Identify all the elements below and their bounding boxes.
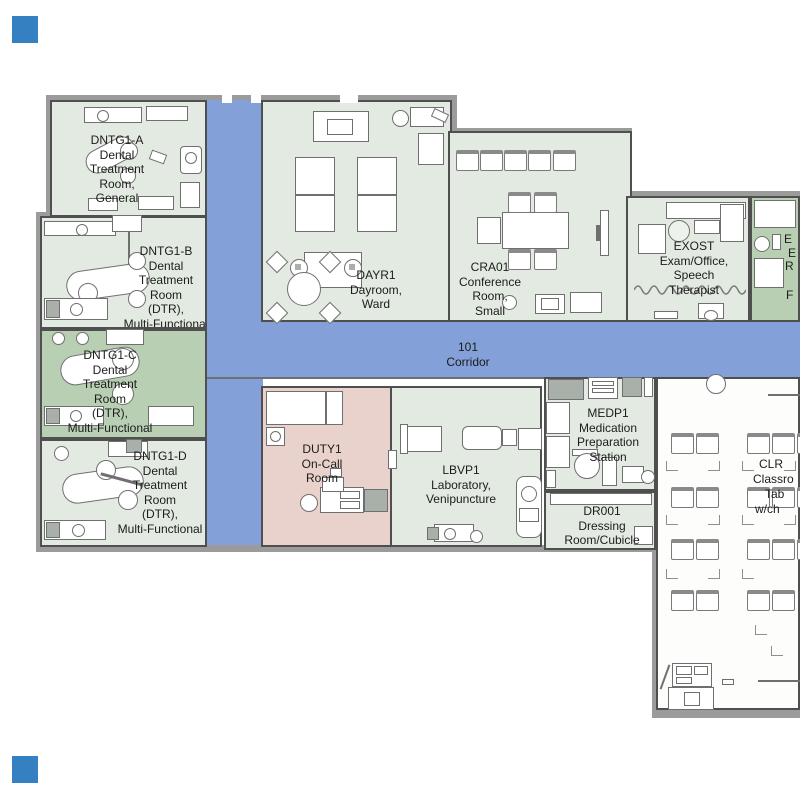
door-gap-1 (222, 94, 232, 103)
chair-icon (528, 150, 551, 171)
table-corner-mark (755, 625, 767, 635)
basin-icon (70, 303, 83, 316)
room-label-exam-frag-4: F (786, 288, 793, 302)
wall-line (768, 394, 800, 396)
headrest-icon (521, 486, 537, 502)
chair-icon (534, 192, 557, 213)
chair-icon (392, 110, 409, 127)
equipment-icon (46, 522, 60, 538)
basin-icon (185, 152, 197, 164)
blood-draw-chair-icon (462, 426, 502, 450)
sink-icon (97, 110, 109, 122)
basin-icon (444, 528, 456, 540)
table-corner-mark (666, 461, 678, 471)
desk-item-icon (340, 491, 360, 499)
equipment-icon (46, 300, 60, 318)
room-label-dayr1: DAYR1Dayroom,Ward (350, 268, 402, 312)
corridor-horizontal (205, 322, 800, 377)
corner-marker-top-left (12, 16, 38, 43)
room-label-duty1: DUTY1On-CallRoom (302, 442, 343, 486)
classroom-chair-icon (671, 487, 694, 508)
desk-item-icon (676, 666, 692, 675)
credenza-icon (570, 292, 602, 313)
speaker-cone-icon (295, 264, 301, 270)
bench-icon (654, 311, 678, 319)
table-corner-mark (708, 569, 720, 579)
shelf-line (592, 388, 614, 393)
chair-icon (456, 150, 479, 171)
classroom-chair-icon (747, 433, 770, 454)
chair-icon (508, 192, 531, 213)
classroom-chair-icon (772, 539, 795, 560)
stool-icon (470, 530, 483, 543)
sink-icon (76, 332, 89, 345)
tv-mount-icon (596, 225, 600, 241)
room-label-exam-frag-1: E (784, 232, 792, 246)
toilet-icon (704, 310, 718, 321)
desk-item-icon (694, 666, 708, 675)
classroom-chair-icon (696, 433, 719, 454)
room-label-medp1: MEDP1MedicationPreparationStation (577, 406, 639, 464)
table-corner-mark (742, 515, 754, 525)
room-label-exam-frag-3: R (785, 259, 794, 273)
room-label-dntg1-b: DNTG1-BDentalTreatmentRoom(DTR),Multi-Fu… (124, 244, 207, 329)
sink-icon (54, 446, 69, 461)
classroom-chair-icon (747, 539, 770, 560)
room-label-dr001: DR001DressingRoom/Cubicle (564, 504, 639, 548)
classroom-chair-icon (696, 539, 719, 560)
armrest-icon (502, 429, 517, 446)
wardrobe-shelf-line (295, 194, 335, 196)
table-corner-mark (742, 461, 754, 471)
chair-icon (504, 150, 527, 171)
classroom-chair-icon (696, 487, 719, 508)
table-corner-mark (708, 461, 720, 471)
speaker-cone-icon (270, 431, 281, 442)
room-label-exost: EXOSTExam/Office,SpeechTherapist (660, 239, 728, 297)
table-corner-mark (666, 515, 678, 525)
chair-icon (480, 150, 503, 171)
cabinet-icon (112, 215, 142, 232)
desk-item-icon (676, 677, 692, 684)
room-label-dntg1-d: DNTG1-DDentalTreatmentRoom(DTR),Multi-Fu… (118, 449, 203, 536)
counter-icon (546, 436, 570, 468)
counter-icon (546, 470, 556, 488)
desk-item-icon (340, 501, 360, 509)
room-label-dntg1-a: DNTG1-ADentalTreatmentRoom,General (90, 133, 144, 206)
chair-icon (534, 249, 557, 270)
chair-icon (300, 494, 318, 512)
counter-icon (84, 107, 142, 123)
recliner-seat-icon (519, 508, 539, 522)
chair-icon (477, 217, 501, 244)
counter-icon (546, 402, 570, 434)
table-corner-mark (666, 569, 678, 579)
room-label-lbvp1: LBVP1Laboratory,Venipuncture (426, 463, 496, 507)
bed-icon (266, 391, 343, 425)
corridor-name: Corridor (446, 355, 489, 369)
room-label-exam-frag-2: E (788, 246, 796, 260)
table-corner-mark (708, 515, 720, 525)
keyboard-icon (694, 220, 720, 234)
desk-icon (754, 200, 796, 228)
sink-icon (76, 224, 88, 236)
counter-icon (548, 379, 584, 400)
door-gap-2 (251, 94, 261, 103)
cabinet-icon (148, 406, 194, 426)
conference-table-icon (502, 212, 569, 249)
equipment-icon (46, 408, 60, 424)
classroom-chair-icon (772, 433, 795, 454)
desk-item-icon (684, 692, 700, 706)
corridor-code: 101 (458, 340, 478, 354)
desk-return-icon (720, 204, 744, 242)
classroom-chair-icon (671, 539, 694, 560)
classroom-chair-icon (671, 433, 694, 454)
equipment-icon (427, 527, 439, 540)
cabinet-icon (644, 377, 653, 397)
desk-item-icon (722, 679, 734, 685)
wall-line (758, 680, 800, 682)
sink-icon (52, 332, 65, 345)
door-gap-3 (340, 94, 358, 103)
classroom-chair-icon (772, 590, 795, 611)
corridor-label: 101Corridor (446, 340, 489, 369)
table-corner-mark (742, 569, 754, 579)
basin-icon (641, 470, 655, 484)
shelf-line (592, 381, 614, 386)
round-table-icon (287, 272, 321, 306)
refrigerator-icon (622, 377, 642, 397)
classroom-chair-icon (671, 590, 694, 611)
floor-plan: DNTG1-ADentalTreatmentRoom,General DNTG1… (0, 0, 800, 800)
corner-marker-bottom-left (12, 756, 38, 783)
table-corner-mark (784, 515, 796, 525)
cabinet-icon (364, 489, 388, 512)
basin-icon (72, 524, 85, 537)
cabinet-icon (518, 428, 542, 450)
chair-icon (418, 133, 444, 165)
blood-draw-chair-icon (406, 426, 442, 452)
room-label-clr-frag-4: w/ch (755, 502, 780, 516)
fixture-icon (180, 182, 200, 208)
sofa-cushion-icon (327, 119, 353, 135)
room-label-clr-frag-1: CLR (759, 457, 783, 471)
chair-icon (553, 150, 576, 171)
equipment-icon (772, 234, 781, 250)
equipment-screen-icon (541, 298, 559, 310)
cabinet-icon (106, 329, 144, 345)
chair-icon (754, 236, 770, 252)
room-label-cra01: CRA01ConferenceRoom,Small (459, 260, 521, 318)
wall-fixture-icon (388, 450, 397, 469)
column-icon (706, 374, 726, 394)
armrest-icon (400, 424, 408, 454)
room-label-dntg1-c: DNTG1-CDentalTreatmentRoom(DTR),Multi-Fu… (68, 348, 153, 435)
room-label-clr-frag-2: Classro (753, 472, 794, 486)
cabinet-icon (146, 106, 188, 121)
room-label-clr-frag-3: Tab (765, 487, 784, 501)
table-corner-mark (771, 646, 783, 656)
classroom-chair-icon (696, 590, 719, 611)
tv-screen-icon (600, 210, 609, 256)
table-corner-mark (784, 461, 796, 471)
cabinet-icon (754, 258, 784, 288)
classroom-chair-icon (747, 590, 770, 611)
bed-pillow-line (325, 392, 327, 424)
wardrobe-shelf-line (357, 194, 397, 196)
